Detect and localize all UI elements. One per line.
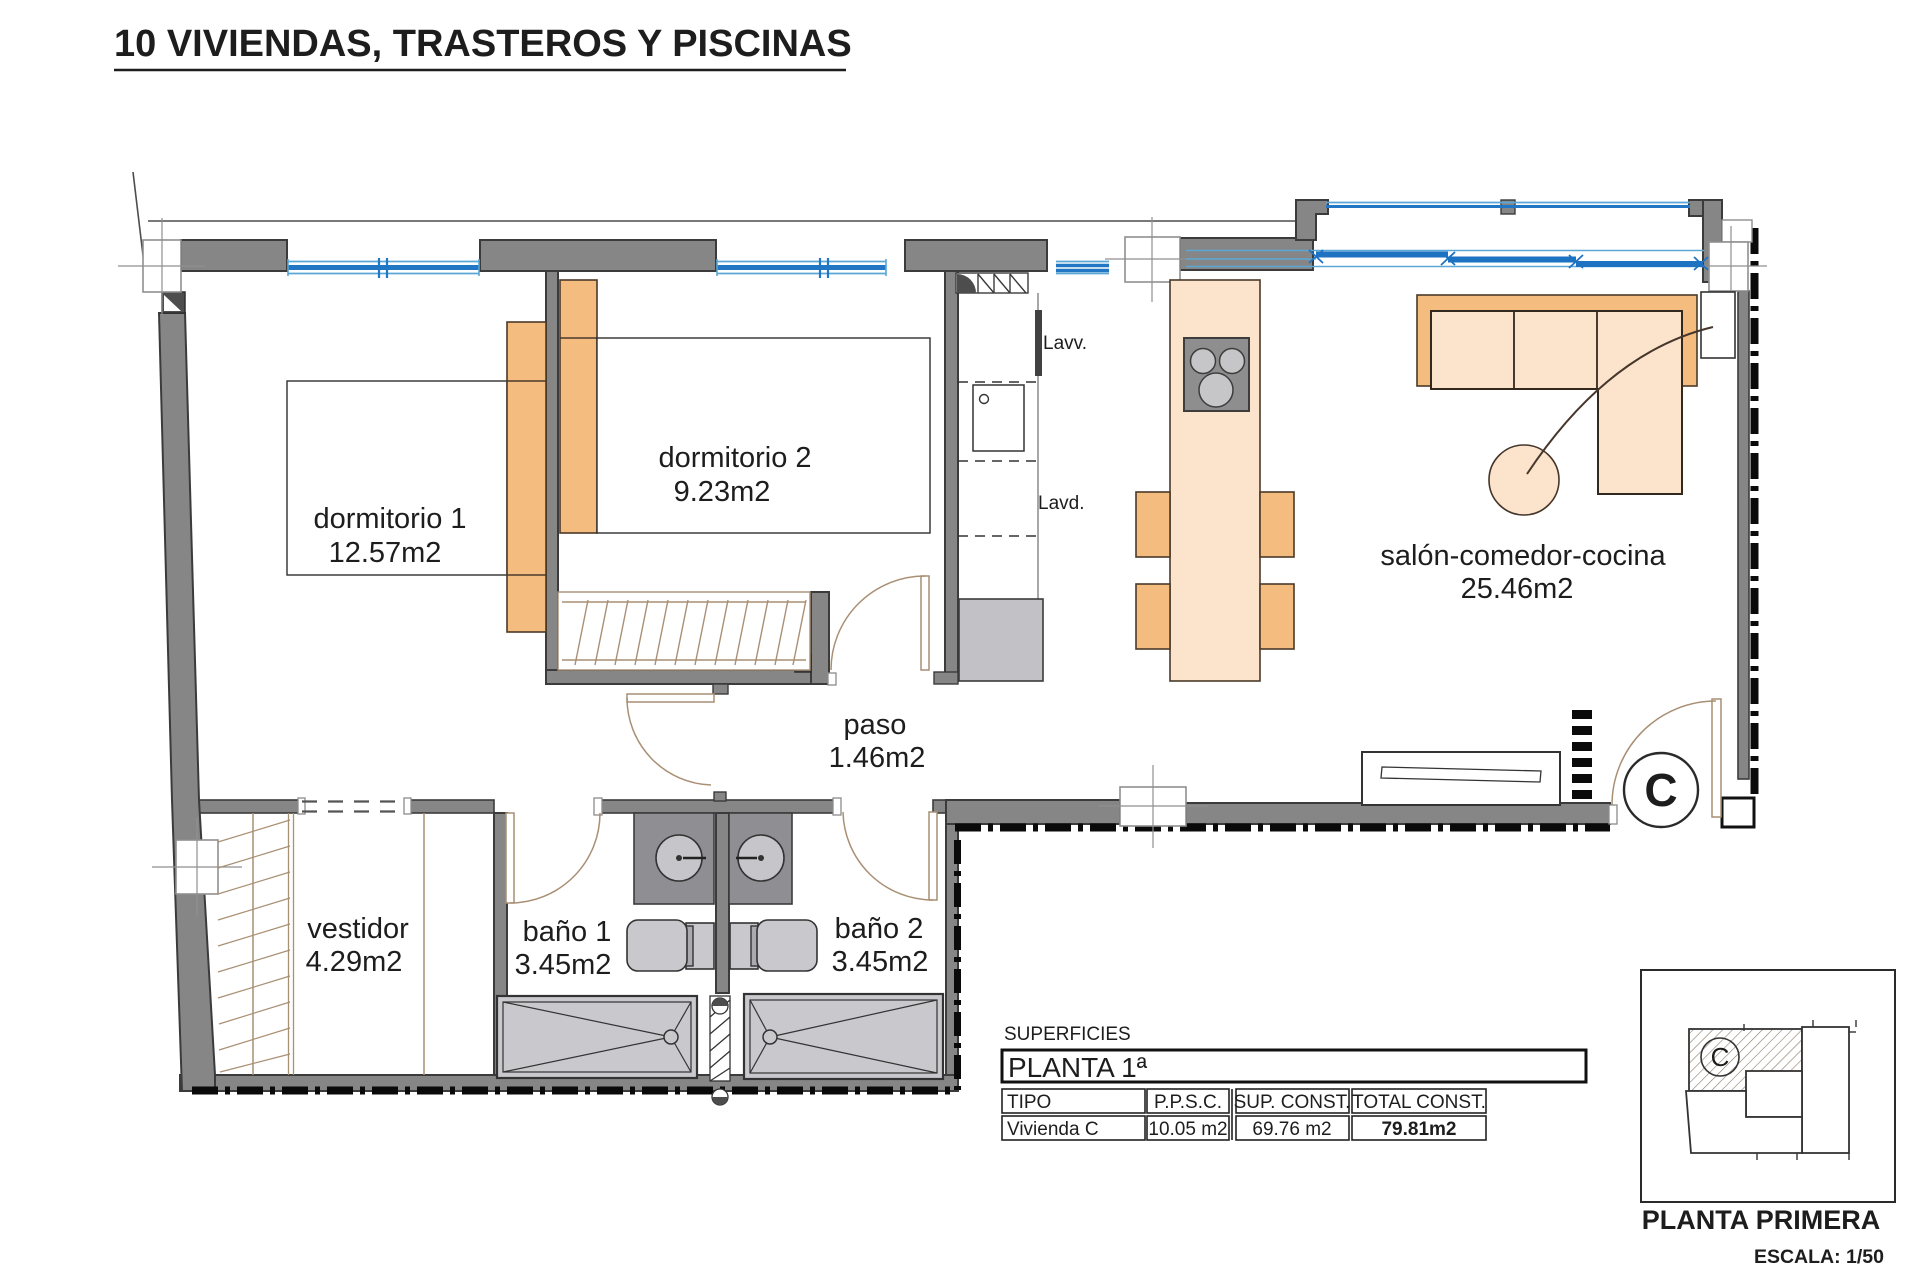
svg-text:3.45m2: 3.45m2	[515, 949, 612, 981]
svg-text:SUP. CONST.: SUP. CONST.	[1234, 1092, 1351, 1113]
svg-text:baño 1: baño 1	[523, 916, 612, 948]
svg-text:ESCALA: 1/50: ESCALA: 1/50	[1754, 1246, 1884, 1268]
svg-text:1.46m2: 1.46m2	[829, 742, 926, 774]
svg-text:10 VIVIENDAS, TRASTEROS Y PISC: 10 VIVIENDAS, TRASTEROS Y PISCINAS	[114, 23, 852, 65]
svg-text:9.23m2: 9.23m2	[674, 476, 771, 508]
svg-text:baño 2: baño 2	[835, 913, 924, 945]
svg-text:TIPO: TIPO	[1007, 1092, 1051, 1113]
svg-text:Vivienda C: Vivienda C	[1007, 1119, 1099, 1140]
svg-text:dormitorio 2: dormitorio 2	[658, 442, 811, 474]
svg-text:4.29m2: 4.29m2	[306, 946, 403, 978]
svg-text:69.76 m2: 69.76 m2	[1252, 1119, 1331, 1140]
svg-text:C: C	[1644, 764, 1677, 816]
svg-text:25.46m2: 25.46m2	[1461, 573, 1574, 605]
svg-text:paso: paso	[844, 709, 907, 741]
svg-text:12.57m2: 12.57m2	[329, 537, 442, 569]
svg-text:3.45m2: 3.45m2	[832, 946, 929, 978]
svg-text:PLANTA 1ª: PLANTA 1ª	[1008, 1052, 1148, 1083]
svg-text:salón-comedor-cocina: salón-comedor-cocina	[1380, 540, 1666, 572]
svg-text:dormitorio 1: dormitorio 1	[313, 503, 466, 535]
svg-text:PLANTA PRIMERA: PLANTA PRIMERA	[1642, 1205, 1881, 1235]
svg-text:Lavd.: Lavd.	[1038, 493, 1084, 514]
svg-text:Lavv.: Lavv.	[1043, 333, 1087, 354]
svg-text:P.P.S.C.: P.P.S.C.	[1154, 1092, 1222, 1113]
svg-text:SUPERFICIES: SUPERFICIES	[1004, 1024, 1131, 1045]
svg-text:vestidor: vestidor	[307, 913, 409, 945]
svg-text:10.05 m2: 10.05 m2	[1148, 1119, 1227, 1140]
svg-text:C: C	[1711, 1042, 1730, 1072]
svg-text:79.81m2: 79.81m2	[1381, 1119, 1456, 1140]
svg-text:TOTAL CONST.: TOTAL CONST.	[1352, 1092, 1486, 1113]
